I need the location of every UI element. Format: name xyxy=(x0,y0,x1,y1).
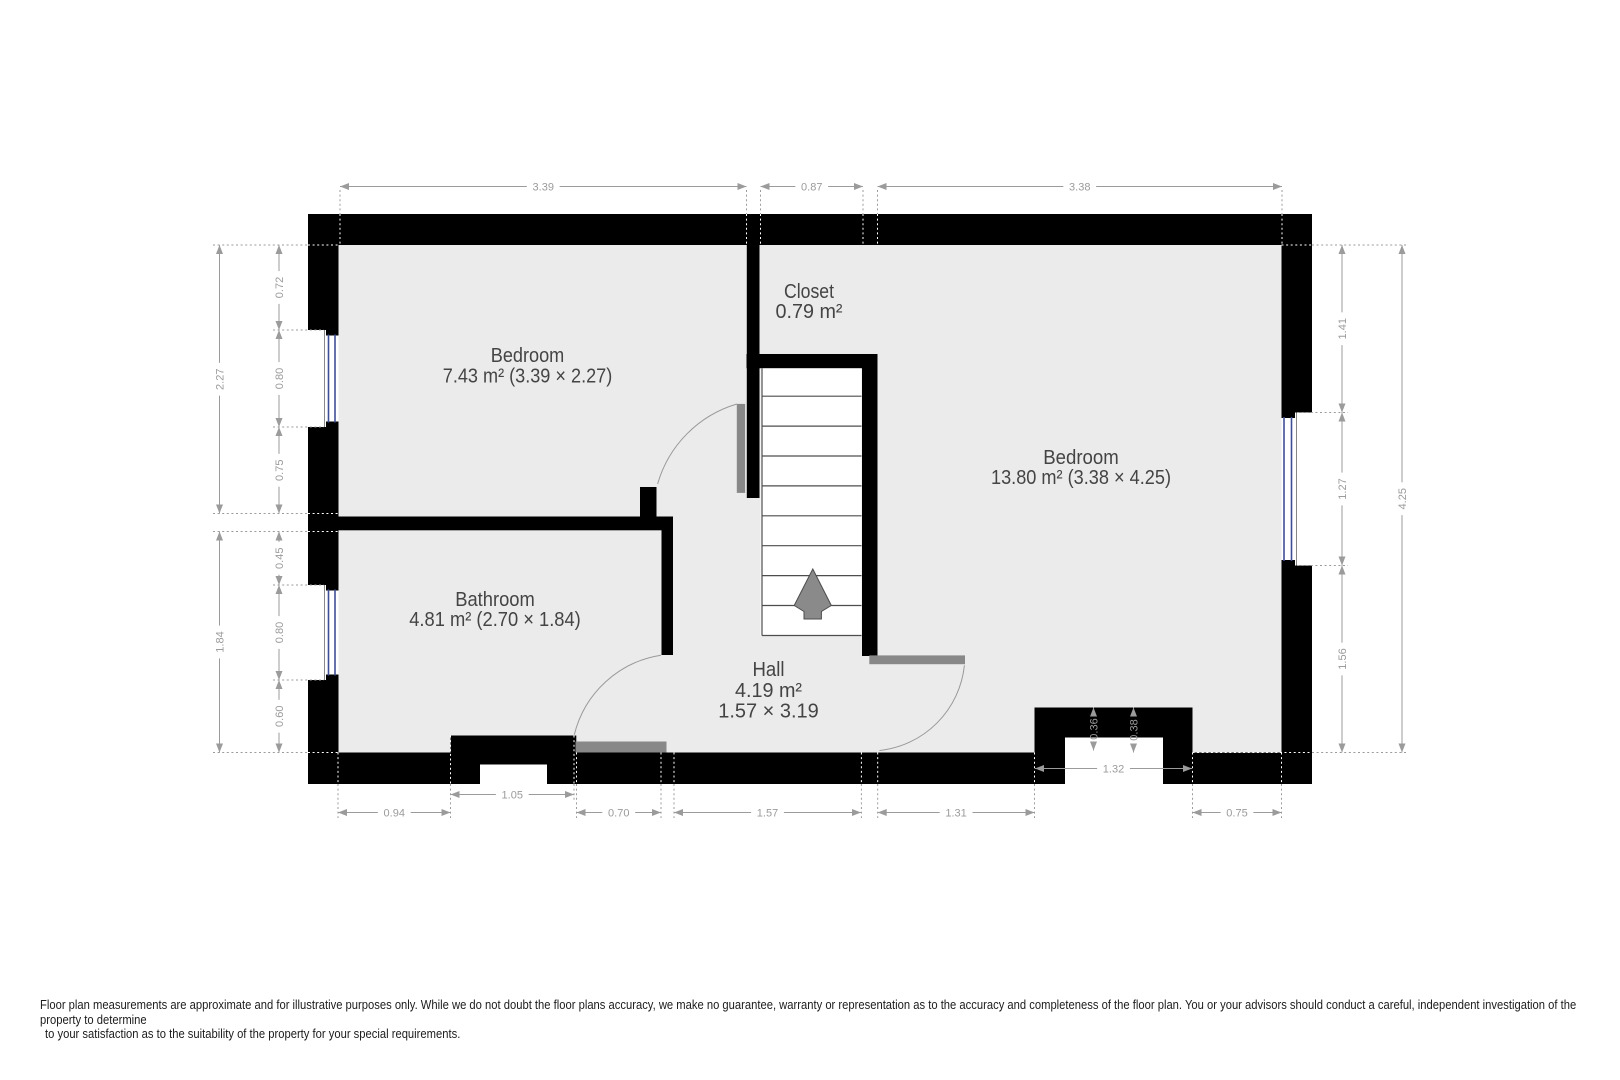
svg-text:1.27: 1.27 xyxy=(1337,478,1349,499)
svg-text:1.41: 1.41 xyxy=(1337,318,1349,339)
svg-text:1.31: 1.31 xyxy=(945,808,966,820)
svg-text:0.94: 0.94 xyxy=(384,808,405,820)
svg-text:3.39: 3.39 xyxy=(533,182,554,194)
svg-text:0.80: 0.80 xyxy=(274,368,286,389)
svg-text:1.84: 1.84 xyxy=(215,631,227,652)
svg-text:0.38: 0.38 xyxy=(1129,719,1141,740)
svg-text:0.79 m²: 0.79 m² xyxy=(776,301,843,323)
svg-text:0.36: 0.36 xyxy=(1089,718,1101,739)
svg-text:1.05: 1.05 xyxy=(502,790,523,802)
svg-text:0.60: 0.60 xyxy=(274,706,286,727)
svg-text:4.19 m²: 4.19 m² xyxy=(735,680,802,702)
svg-text:1.57: 1.57 xyxy=(757,808,778,820)
svg-text:1.56: 1.56 xyxy=(1337,648,1349,669)
svg-text:0.75: 0.75 xyxy=(274,460,286,481)
svg-text:1.32: 1.32 xyxy=(1103,764,1124,776)
svg-text:1.57 × 3.19: 1.57 × 3.19 xyxy=(718,701,819,723)
svg-text:0.75: 0.75 xyxy=(1226,808,1247,820)
svg-text:4.81 m² (2.70 × 1.84): 4.81 m² (2.70 × 1.84) xyxy=(409,609,581,631)
svg-text:Bedroom: Bedroom xyxy=(1043,447,1119,469)
svg-text:0.45: 0.45 xyxy=(274,548,286,569)
svg-text:Bathroom: Bathroom xyxy=(455,589,535,611)
svg-text:0.87: 0.87 xyxy=(801,182,822,194)
svg-text:3.38: 3.38 xyxy=(1069,182,1090,194)
svg-text:4.25: 4.25 xyxy=(1397,488,1409,509)
svg-text:Closet: Closet xyxy=(784,281,834,303)
svg-text:0.80: 0.80 xyxy=(274,622,286,643)
svg-text:0.72: 0.72 xyxy=(274,277,286,298)
svg-text:0.70: 0.70 xyxy=(608,808,629,820)
svg-text:2.27: 2.27 xyxy=(215,369,227,390)
svg-text:7.43 m² (3.39 × 2.27): 7.43 m² (3.39 × 2.27) xyxy=(443,366,613,388)
svg-text:13.80 m² (3.38 × 4.25): 13.80 m² (3.38 × 4.25) xyxy=(991,467,1171,489)
svg-text:Hall: Hall xyxy=(753,659,785,681)
svg-text:Bedroom: Bedroom xyxy=(491,345,565,367)
